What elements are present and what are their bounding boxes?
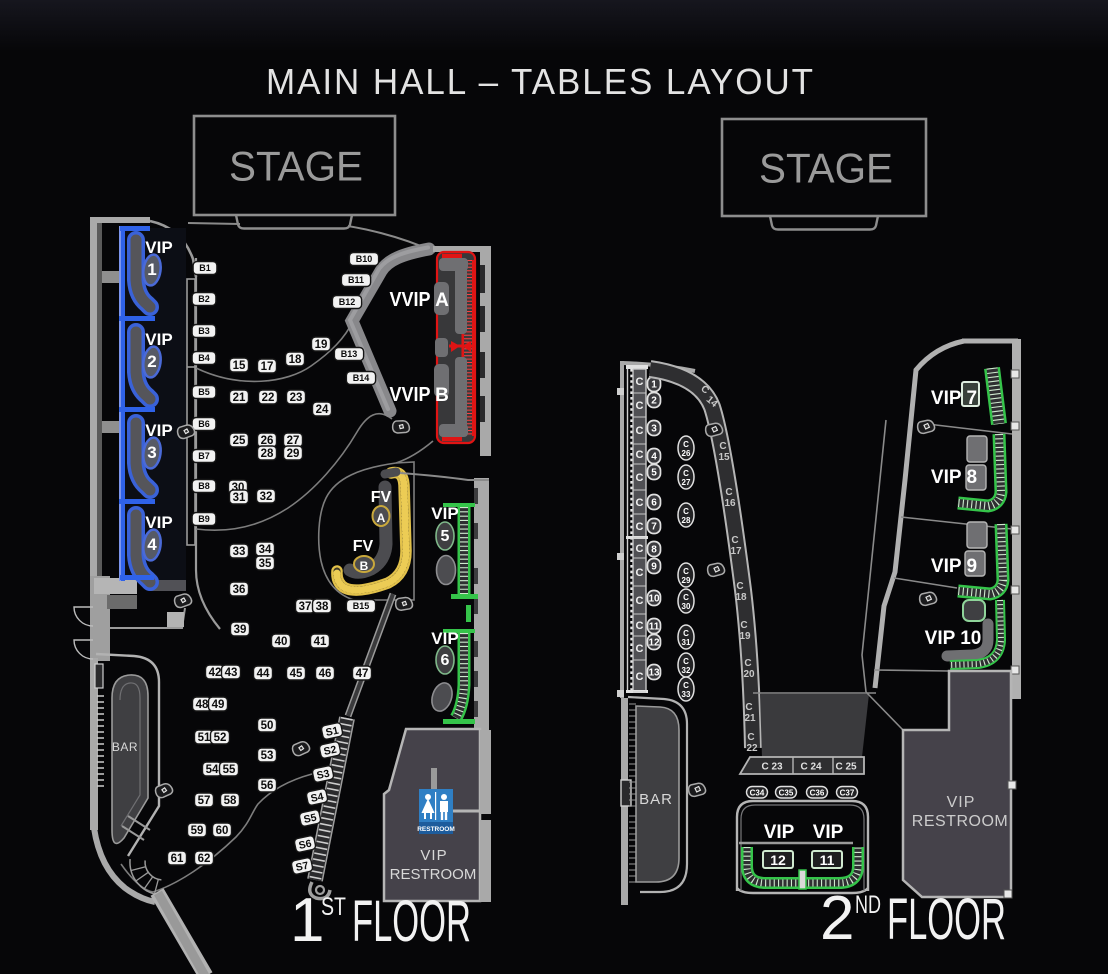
- svg-text:ST: ST: [321, 893, 346, 921]
- svg-text:39: 39: [234, 624, 247, 636]
- svg-text:46: 46: [319, 668, 332, 680]
- svg-text:22: 22: [262, 392, 275, 404]
- svg-text:17: 17: [730, 546, 742, 557]
- svg-text:10: 10: [648, 594, 660, 605]
- svg-text:37: 37: [299, 601, 312, 613]
- svg-text:C: C: [636, 521, 644, 533]
- svg-text:VIP: VIP: [764, 822, 795, 843]
- svg-text:12: 12: [648, 638, 660, 649]
- svg-text:1: 1: [290, 886, 324, 955]
- svg-text:C37: C37: [840, 789, 855, 798]
- svg-text:B15: B15: [353, 601, 370, 611]
- svg-text:C: C: [683, 681, 689, 690]
- svg-text:12: 12: [770, 852, 786, 868]
- svg-text:1: 1: [147, 260, 156, 279]
- svg-text:32: 32: [260, 491, 273, 503]
- svg-text:C: C: [719, 441, 726, 452]
- svg-text:5: 5: [651, 468, 657, 479]
- svg-text:31: 31: [682, 638, 691, 647]
- svg-text:2: 2: [651, 396, 657, 407]
- svg-text:VIP 7: VIP 7: [931, 388, 977, 409]
- svg-text:C: C: [744, 658, 751, 669]
- svg-text:25: 25: [233, 435, 246, 447]
- svg-text:6: 6: [651, 498, 657, 509]
- svg-text:23: 23: [290, 392, 303, 404]
- svg-text:59: 59: [191, 825, 204, 837]
- svg-text:2: 2: [820, 884, 854, 953]
- svg-text:55: 55: [223, 764, 236, 776]
- svg-text:C: C: [636, 497, 644, 509]
- svg-text:36: 36: [233, 584, 246, 596]
- svg-text:35: 35: [259, 558, 272, 570]
- svg-text:C34: C34: [750, 789, 765, 798]
- svg-text:C: C: [636, 595, 644, 607]
- svg-text:C36: C36: [810, 789, 825, 798]
- svg-text:C: C: [725, 487, 732, 498]
- svg-text:B1: B1: [199, 263, 211, 273]
- svg-text:A: A: [377, 511, 386, 525]
- svg-text:11: 11: [820, 852, 835, 868]
- svg-text:ND: ND: [855, 891, 881, 919]
- svg-text:BAR: BAR: [112, 740, 138, 754]
- svg-text:C: C: [747, 732, 754, 743]
- svg-text:VIP 9: VIP 9: [931, 556, 977, 577]
- svg-text:FV: FV: [353, 538, 374, 555]
- svg-text:34: 34: [259, 544, 272, 556]
- svg-text:B: B: [360, 559, 369, 573]
- svg-text:30: 30: [682, 602, 691, 611]
- svg-text:MAIN HALL – TABLES LAYOUT: MAIN HALL – TABLES LAYOUT: [266, 61, 815, 102]
- svg-text:42: 42: [209, 667, 222, 679]
- svg-text:STAGE: STAGE: [759, 145, 893, 192]
- svg-text:B7: B7: [198, 451, 210, 461]
- svg-text:29: 29: [682, 576, 691, 585]
- svg-text:C: C: [683, 440, 689, 449]
- svg-text:4: 4: [147, 535, 157, 554]
- svg-text:29: 29: [287, 448, 300, 460]
- svg-text:FV: FV: [371, 489, 392, 506]
- svg-text:C: C: [745, 702, 752, 713]
- svg-text:VIP: VIP: [145, 330, 172, 349]
- svg-text:VIP 8: VIP 8: [931, 467, 977, 488]
- svg-text:5: 5: [441, 528, 450, 545]
- svg-text:48: 48: [196, 699, 209, 711]
- svg-text:VIP: VIP: [431, 629, 458, 648]
- svg-text:C: C: [683, 507, 689, 516]
- svg-text:VVIP: VVIP: [390, 289, 431, 311]
- svg-text:53: 53: [261, 750, 274, 762]
- svg-text:B14: B14: [353, 373, 370, 383]
- svg-text:45: 45: [290, 668, 303, 680]
- svg-text:RESTROOM: RESTROOM: [390, 866, 477, 883]
- svg-text:VIP 10: VIP 10: [925, 628, 982, 649]
- svg-text:32: 32: [682, 666, 691, 675]
- svg-text:B12: B12: [339, 297, 356, 307]
- svg-text:21: 21: [744, 713, 756, 724]
- svg-text:28: 28: [261, 448, 274, 460]
- svg-text:4: 4: [651, 452, 657, 463]
- svg-text:VIP: VIP: [145, 513, 172, 532]
- svg-text:19: 19: [315, 339, 328, 351]
- svg-text:43: 43: [225, 667, 238, 679]
- svg-text:C: C: [683, 629, 689, 638]
- svg-text:19: 19: [739, 631, 751, 642]
- svg-text:60: 60: [216, 825, 229, 837]
- svg-text:RESTROOM: RESTROOM: [912, 813, 1008, 830]
- svg-text:13: 13: [648, 668, 660, 679]
- svg-text:18: 18: [289, 354, 302, 366]
- svg-text:VIP: VIP: [431, 504, 458, 523]
- svg-text:C: C: [636, 400, 644, 412]
- svg-text:20: 20: [743, 669, 755, 680]
- svg-text:C: C: [683, 567, 689, 576]
- svg-text:1: 1: [651, 380, 657, 391]
- svg-text:VIP: VIP: [145, 421, 172, 440]
- svg-text:57: 57: [198, 795, 211, 807]
- svg-text:50: 50: [261, 720, 274, 732]
- svg-text:11: 11: [649, 622, 660, 633]
- svg-text:27: 27: [682, 478, 691, 487]
- svg-text:2: 2: [147, 352, 156, 371]
- svg-text:B4: B4: [198, 353, 210, 363]
- svg-text:C: C: [683, 469, 689, 478]
- svg-text:40: 40: [275, 636, 288, 648]
- svg-text:FLOOR: FLOOR: [887, 887, 1006, 952]
- svg-text:41: 41: [314, 636, 327, 648]
- svg-text:B13: B13: [341, 349, 358, 359]
- svg-text:VIP: VIP: [420, 847, 447, 864]
- svg-text:C: C: [683, 657, 689, 666]
- svg-text:47: 47: [356, 668, 369, 680]
- svg-text:31: 31: [233, 492, 246, 504]
- svg-text:7: 7: [651, 522, 657, 533]
- svg-text:C 24: C 24: [800, 762, 822, 773]
- svg-text:51: 51: [198, 732, 211, 744]
- svg-text:VIP: VIP: [145, 238, 172, 257]
- svg-text:C35: C35: [779, 789, 794, 798]
- svg-text:22: 22: [746, 743, 758, 754]
- svg-text:C: C: [636, 543, 644, 555]
- svg-text:17: 17: [261, 361, 274, 373]
- svg-text:B: B: [435, 385, 449, 406]
- svg-text:38: 38: [316, 601, 329, 613]
- svg-text:28: 28: [682, 516, 691, 525]
- svg-text:44: 44: [257, 668, 270, 680]
- svg-text:C: C: [636, 567, 644, 579]
- svg-text:16: 16: [724, 498, 736, 509]
- svg-text:58: 58: [224, 795, 237, 807]
- svg-text:C: C: [740, 620, 747, 631]
- svg-text:B3: B3: [198, 326, 210, 336]
- svg-text:RESTROOM: RESTROOM: [417, 826, 455, 833]
- svg-text:62: 62: [198, 853, 211, 865]
- svg-text:B5: B5: [198, 387, 210, 397]
- svg-text:C: C: [636, 671, 644, 683]
- svg-text:C: C: [636, 472, 644, 484]
- svg-text:52: 52: [214, 732, 227, 744]
- svg-text:C: C: [636, 620, 644, 632]
- svg-text:B11: B11: [348, 275, 364, 285]
- svg-text:33: 33: [233, 546, 246, 558]
- svg-text:C: C: [636, 449, 644, 461]
- svg-text:26: 26: [682, 449, 691, 458]
- svg-text:B10: B10: [356, 254, 373, 264]
- svg-text:B2: B2: [198, 294, 210, 304]
- svg-text:21: 21: [233, 392, 246, 404]
- svg-text:A: A: [435, 290, 449, 311]
- svg-text:B8: B8: [198, 481, 210, 491]
- svg-text:24: 24: [316, 404, 329, 416]
- svg-text:C: C: [731, 535, 738, 546]
- svg-text:33: 33: [682, 690, 691, 699]
- svg-text:15: 15: [233, 360, 246, 372]
- svg-text:STAGE: STAGE: [229, 143, 363, 190]
- svg-text:VVIP: VVIP: [390, 384, 431, 406]
- svg-text:BAR: BAR: [639, 791, 673, 808]
- svg-text:54: 54: [206, 764, 219, 776]
- svg-text:9: 9: [651, 562, 657, 573]
- svg-text:C 23: C 23: [761, 762, 783, 773]
- svg-text:FLOOR: FLOOR: [352, 889, 471, 954]
- svg-text:56: 56: [261, 780, 274, 792]
- svg-text:B9: B9: [198, 514, 210, 524]
- svg-text:C: C: [683, 593, 689, 602]
- svg-text:C: C: [636, 425, 644, 437]
- svg-text:3: 3: [651, 424, 657, 435]
- svg-text:49: 49: [212, 699, 225, 711]
- svg-text:VIP: VIP: [813, 822, 844, 843]
- svg-text:18: 18: [735, 592, 747, 603]
- svg-text:8: 8: [651, 545, 657, 556]
- svg-text:3: 3: [147, 443, 156, 462]
- svg-text:C: C: [636, 376, 644, 388]
- svg-text:C: C: [736, 581, 743, 592]
- svg-text:VIP: VIP: [947, 794, 976, 811]
- svg-text:C 25: C 25: [835, 762, 857, 773]
- svg-text:B6: B6: [198, 419, 210, 429]
- svg-text:61: 61: [171, 853, 184, 865]
- svg-text:C: C: [636, 643, 644, 655]
- svg-text:15: 15: [718, 452, 730, 463]
- svg-text:6: 6: [441, 652, 450, 669]
